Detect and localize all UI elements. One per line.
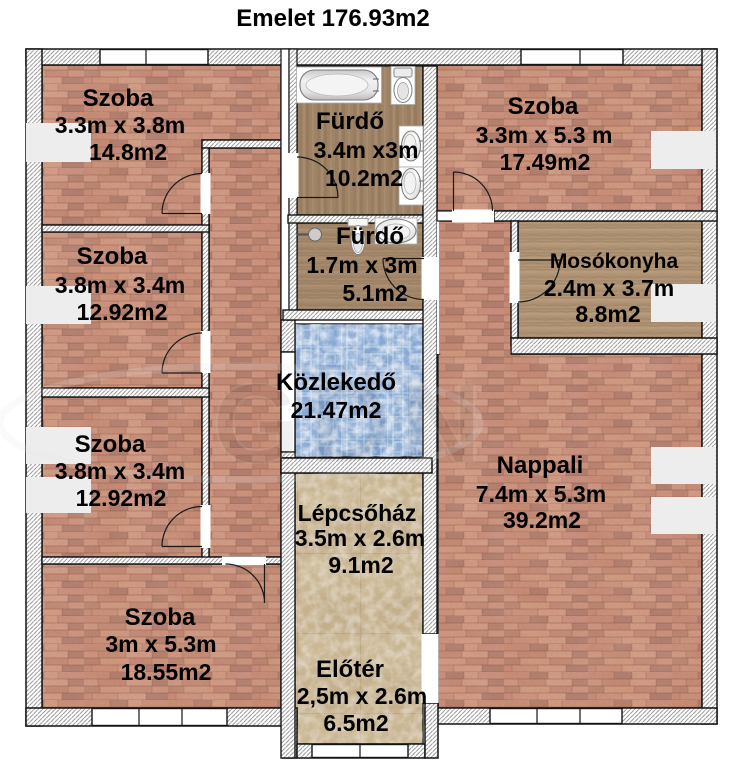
svg-text:3.3m x 5.3 m: 3.3m x 5.3 m bbox=[476, 122, 613, 148]
svg-text:Mosókonyha: Mosókonyha bbox=[550, 250, 679, 273]
svg-text:3.5m x 2.6m: 3.5m x 2.6m bbox=[295, 525, 425, 551]
svg-text:Közlekedő: Közlekedő bbox=[276, 369, 396, 396]
svg-text:12.92m2: 12.92m2 bbox=[77, 299, 168, 325]
svg-text:9.1m2: 9.1m2 bbox=[328, 552, 393, 578]
svg-text:2,5m x 2.6m: 2,5m x 2.6m bbox=[297, 683, 427, 709]
svg-text:17.49m2: 17.49m2 bbox=[500, 149, 591, 175]
svg-text:Szoba: Szoba bbox=[75, 431, 146, 458]
svg-text:6.5m2: 6.5m2 bbox=[323, 710, 388, 736]
svg-text:8.8m2: 8.8m2 bbox=[575, 301, 640, 327]
svg-text:Lépcsőház: Lépcsőház bbox=[298, 500, 417, 526]
svg-text:3.8m x 3.4m: 3.8m x 3.4m bbox=[55, 272, 185, 298]
svg-text:Szoba: Szoba bbox=[508, 93, 579, 120]
svg-text:21.47m2: 21.47m2 bbox=[291, 397, 382, 423]
svg-text:2.4m x 3.7m: 2.4m x 3.7m bbox=[544, 275, 674, 301]
svg-text:14.8m2: 14.8m2 bbox=[89, 139, 167, 165]
svg-text:3m x 5.3m: 3m x 5.3m bbox=[105, 631, 216, 657]
svg-text:3.4m x3m: 3.4m x3m bbox=[314, 137, 419, 163]
svg-text:Szoba: Szoba bbox=[125, 604, 196, 631]
svg-text:Fürdő: Fürdő bbox=[336, 223, 404, 250]
svg-text:10.2m2: 10.2m2 bbox=[325, 165, 403, 191]
svg-text:Fürdő: Fürdő bbox=[316, 108, 384, 135]
svg-text:5.1m2: 5.1m2 bbox=[342, 280, 407, 306]
svg-text:3.3m x 3.8m: 3.3m x 3.8m bbox=[55, 112, 185, 138]
svg-text:Előtér: Előtér bbox=[316, 656, 384, 683]
svg-text:18.55m2: 18.55m2 bbox=[121, 659, 212, 685]
svg-text:Nappali: Nappali bbox=[497, 452, 584, 479]
svg-text:7.4m x 5.3m: 7.4m x 5.3m bbox=[476, 481, 606, 507]
svg-text:3.8m x 3.4m: 3.8m x 3.4m bbox=[55, 458, 185, 484]
svg-text:Szoba: Szoba bbox=[77, 243, 148, 270]
svg-text:39.2m2: 39.2m2 bbox=[503, 507, 581, 533]
svg-text:Szoba: Szoba bbox=[83, 85, 154, 112]
svg-text:Emelet 176.93m2: Emelet 176.93m2 bbox=[236, 5, 429, 32]
svg-text:12.92m2: 12.92m2 bbox=[76, 485, 167, 511]
svg-text:1.7m x 3m: 1.7m x 3m bbox=[306, 252, 417, 278]
